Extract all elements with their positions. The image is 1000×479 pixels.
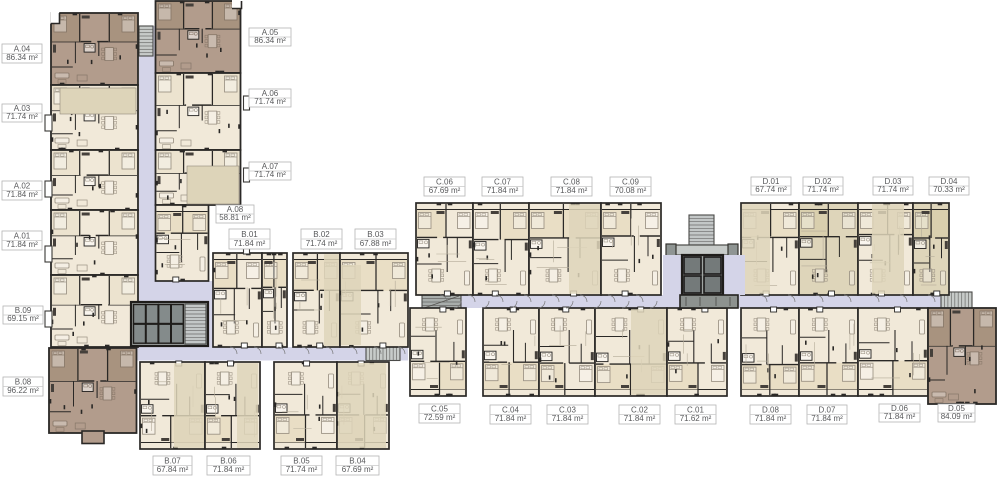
svg-text:C.06: C.06	[436, 177, 453, 186]
svg-text:71.84 m²: 71.84 m²	[6, 240, 38, 249]
svg-text:D.07: D.07	[819, 405, 836, 414]
svg-text:C.09: C.09	[622, 177, 639, 186]
svg-text:B.04: B.04	[349, 456, 366, 465]
svg-text:71.74 m²: 71.74 m²	[286, 465, 318, 474]
svg-text:B.08: B.08	[15, 377, 32, 386]
svg-text:71.84 m²: 71.84 m²	[213, 465, 245, 474]
svg-text:86.34 m²: 86.34 m²	[254, 36, 286, 45]
svg-text:B.06: B.06	[220, 456, 237, 465]
svg-text:71.74 m²: 71.74 m²	[254, 97, 286, 106]
svg-text:C.08: C.08	[563, 177, 580, 186]
svg-text:71.74 m²: 71.74 m²	[254, 170, 286, 179]
svg-text:67.69 m²: 67.69 m²	[342, 465, 374, 474]
svg-text:71.74 m²: 71.74 m²	[877, 185, 909, 194]
svg-text:67.84 m²: 67.84 m²	[157, 465, 189, 474]
svg-text:71.62 m²: 71.62 m²	[680, 414, 712, 423]
svg-text:C.05: C.05	[431, 404, 448, 413]
svg-text:58.81 m²: 58.81 m²	[219, 213, 251, 222]
svg-text:84.09 m²: 84.09 m²	[941, 412, 973, 421]
svg-text:72.59 m²: 72.59 m²	[424, 413, 456, 422]
svg-text:C.04: C.04	[502, 405, 519, 414]
svg-text:C.01: C.01	[687, 405, 704, 414]
svg-text:70.08 m²: 70.08 m²	[615, 186, 647, 195]
svg-text:B.02: B.02	[313, 230, 330, 239]
svg-text:71.84 m²: 71.84 m²	[884, 412, 916, 421]
svg-text:70.33 m²: 70.33 m²	[933, 185, 965, 194]
svg-text:67.88 m²: 67.88 m²	[360, 239, 392, 248]
svg-text:69.15 m²: 69.15 m²	[7, 314, 39, 323]
svg-text:71.74 m²: 71.74 m²	[807, 185, 839, 194]
svg-text:C.07: C.07	[494, 177, 511, 186]
svg-text:A.02: A.02	[14, 181, 31, 190]
svg-text:B.07: B.07	[164, 456, 181, 465]
svg-text:D.08: D.08	[762, 405, 779, 414]
svg-text:96.22 m²: 96.22 m²	[7, 386, 39, 395]
svg-text:86.34 m²: 86.34 m²	[6, 53, 38, 62]
svg-text:B.03: B.03	[367, 230, 384, 239]
svg-text:71.84 m²: 71.84 m²	[487, 186, 519, 195]
svg-text:71.84 m²: 71.84 m²	[811, 414, 843, 423]
svg-text:C.03: C.03	[559, 405, 576, 414]
svg-text:B.05: B.05	[293, 456, 310, 465]
svg-text:71.84 m²: 71.84 m²	[755, 414, 787, 423]
svg-text:71.74 m²: 71.74 m²	[6, 112, 38, 121]
svg-text:71.84 m²: 71.84 m²	[624, 414, 656, 423]
svg-text:71.84 m²: 71.84 m²	[556, 186, 588, 195]
svg-text:71.84 m²: 71.84 m²	[552, 414, 584, 423]
svg-text:A.01: A.01	[14, 231, 31, 240]
svg-text:67.69 m²: 67.69 m²	[429, 186, 461, 195]
svg-text:71.84 m²: 71.84 m²	[6, 190, 38, 199]
svg-text:67.74 m²: 67.74 m²	[755, 185, 787, 194]
svg-text:B.01: B.01	[241, 230, 258, 239]
svg-text:71.84 m²: 71.84 m²	[495, 414, 527, 423]
svg-text:C.02: C.02	[631, 405, 648, 414]
svg-text:A.04: A.04	[14, 44, 31, 53]
svg-text:71.74 m²: 71.74 m²	[306, 239, 338, 248]
svg-text:71.84 m²: 71.84 m²	[234, 239, 266, 248]
